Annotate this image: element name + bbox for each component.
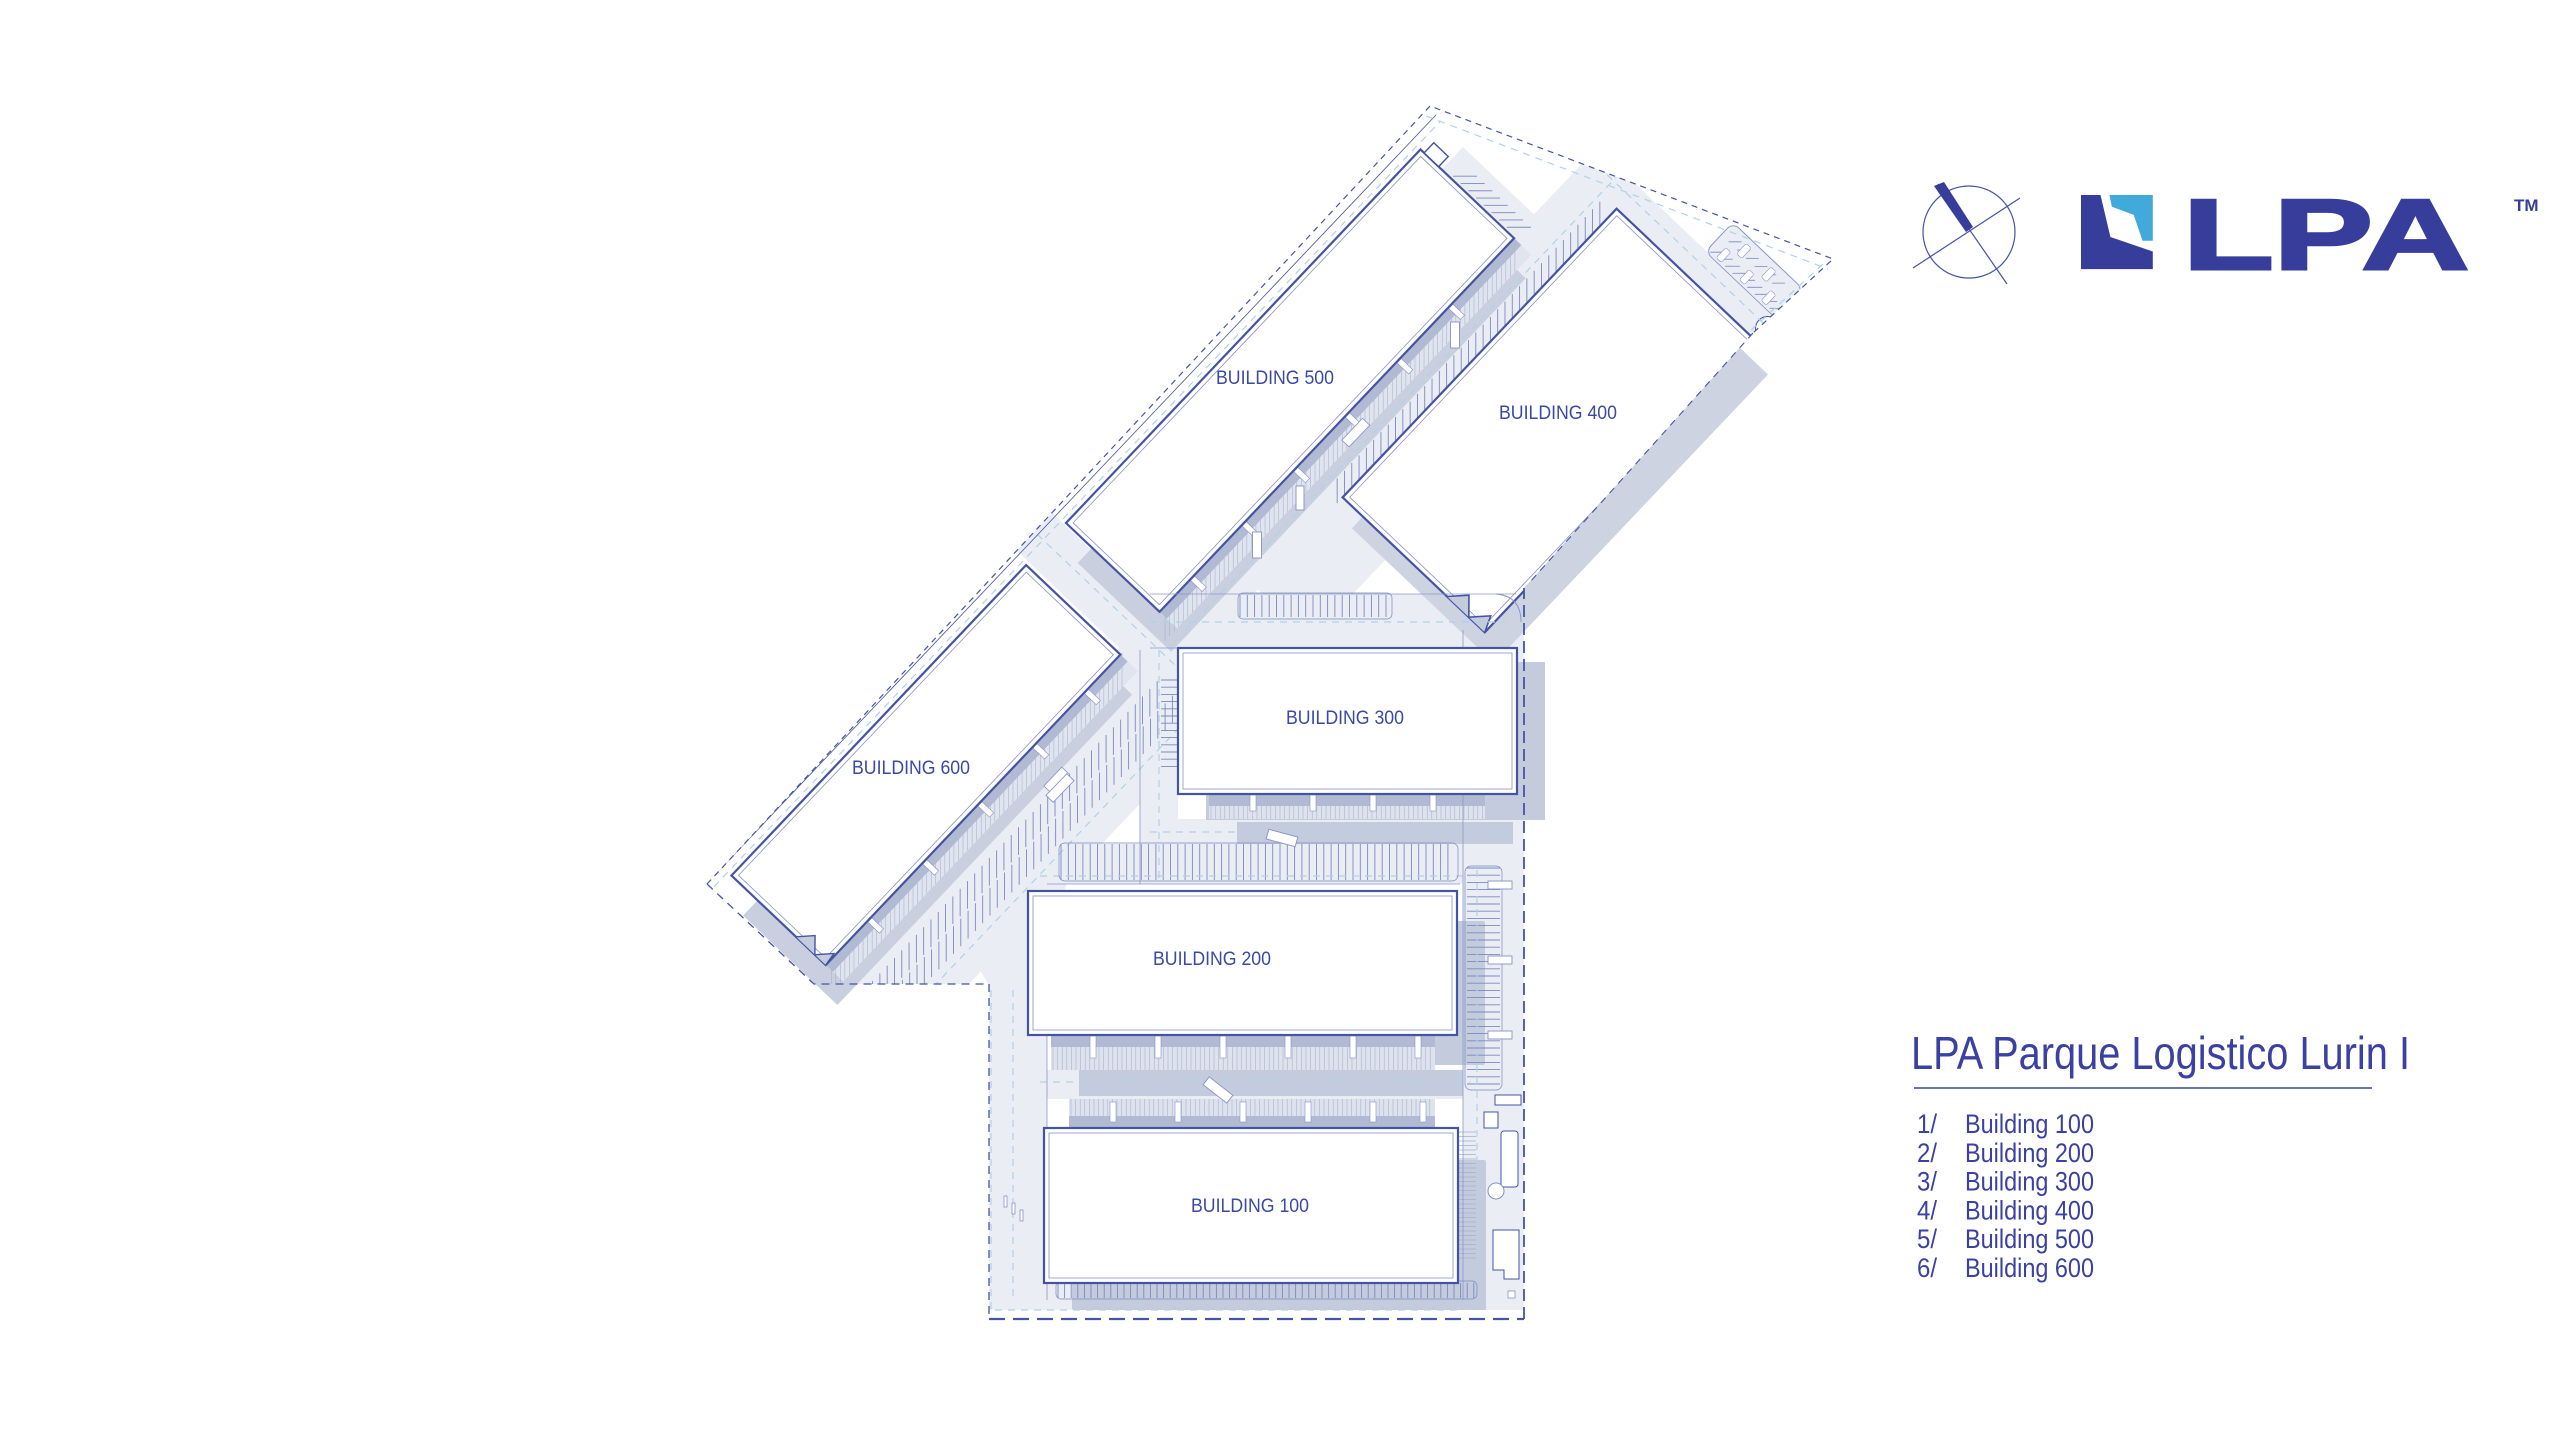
svg-text:Building 100: Building 100 xyxy=(1965,1109,2094,1139)
svg-text:BUILDING 100: BUILDING 100 xyxy=(1191,1196,1309,1217)
svg-text:6/: 6/ xyxy=(1917,1253,1937,1283)
svg-text:Building 500: Building 500 xyxy=(1965,1224,2094,1254)
svg-text:3/: 3/ xyxy=(1917,1167,1937,1197)
svg-text:1/: 1/ xyxy=(1917,1109,1937,1139)
svg-text:2/: 2/ xyxy=(1917,1138,1937,1168)
svg-text:LPA Parque Logistico Lurin I: LPA Parque Logistico Lurin I xyxy=(1911,1027,2410,1079)
svg-text:BUILDING 400: BUILDING 400 xyxy=(1499,403,1617,424)
svg-text:Building 600: Building 600 xyxy=(1965,1253,2094,1283)
svg-text:5/: 5/ xyxy=(1917,1224,1937,1254)
svg-text:4/: 4/ xyxy=(1917,1195,1937,1225)
svg-text:TM: TM xyxy=(2514,196,2539,215)
svg-text:Building 400: Building 400 xyxy=(1965,1195,2094,1225)
svg-text:BUILDING 600: BUILDING 600 xyxy=(852,758,970,779)
svg-text:BUILDING 500: BUILDING 500 xyxy=(1216,368,1334,389)
svg-text:Building 300: Building 300 xyxy=(1965,1167,2094,1197)
svg-text:LPA: LPA xyxy=(2183,179,2469,291)
svg-text:Building 200: Building 200 xyxy=(1965,1138,2094,1168)
svg-text:BUILDING 300: BUILDING 300 xyxy=(1286,708,1404,729)
svg-text:BUILDING 200: BUILDING 200 xyxy=(1153,949,1271,970)
